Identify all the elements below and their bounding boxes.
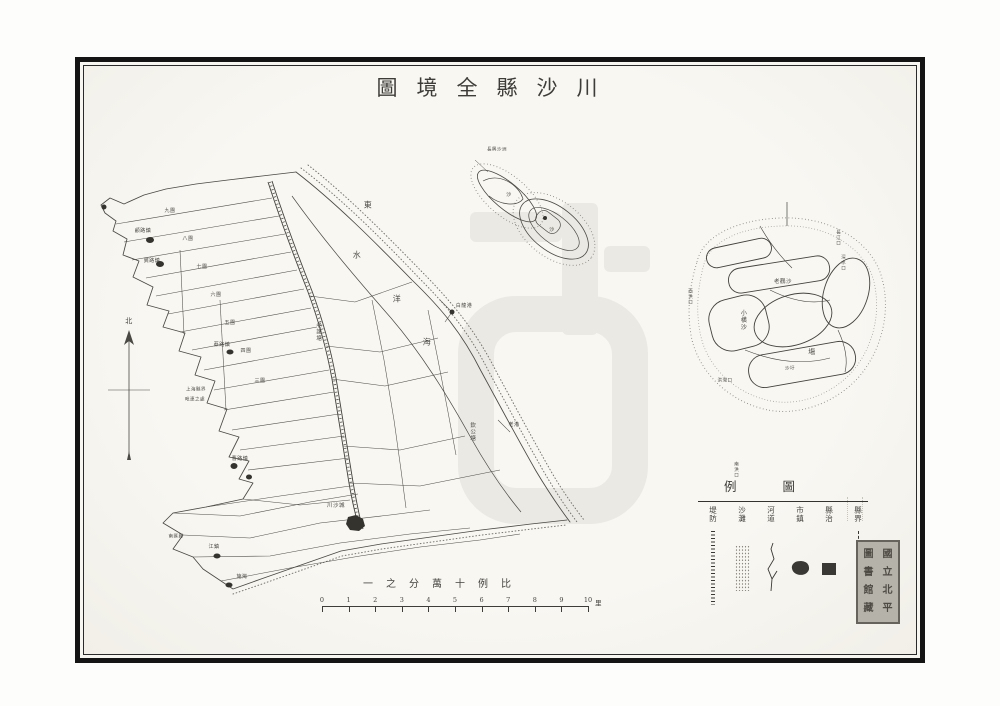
title-char: 川	[577, 72, 598, 102]
scale-tick-number: 5	[453, 596, 457, 604]
scale-char: 一	[363, 575, 373, 590]
county-outline	[101, 172, 570, 589]
seal-character: 國	[883, 546, 893, 564]
legend-item-label: 河道	[766, 506, 777, 523]
town-blob-icon	[791, 560, 810, 576]
title-char: 境	[417, 72, 438, 102]
scale-char: 十	[455, 575, 465, 590]
seal-character: 藏	[864, 600, 874, 618]
seal-character: 圖	[864, 546, 874, 564]
scale-tick-number: 3	[400, 596, 404, 604]
map-title: 圖境全縣沙川	[0, 72, 987, 102]
scale-tick	[588, 606, 589, 612]
seal-character: 平	[883, 600, 893, 618]
title-char: 縣	[497, 72, 518, 102]
scale-caption: 一之分萬十例比	[363, 575, 511, 590]
scale-tick	[482, 606, 483, 612]
scale-tick	[561, 606, 562, 612]
scale-tick	[535, 606, 536, 612]
dike-hatched-line-icon	[711, 531, 715, 605]
scale-char: 萬	[432, 575, 442, 590]
scale-ruler: 里 012345678910	[322, 598, 622, 614]
faint-marks	[847, 497, 863, 521]
scale-unit: 里	[595, 597, 602, 607]
scale-tick-number: 0	[320, 596, 324, 604]
scale-char: 比	[501, 575, 511, 590]
legend-item-town-blob: 市鎮	[788, 506, 812, 575]
scale-char: 例	[478, 575, 488, 590]
scale-tick-number: 9	[559, 596, 563, 604]
scale-tick-number: 1	[347, 596, 351, 604]
scale-tick	[322, 606, 323, 612]
scale-tick-number: 10	[584, 596, 592, 604]
scale-char: 之	[386, 575, 396, 590]
seal-character: 立	[883, 564, 893, 582]
legend-item-label: 市鎮	[795, 506, 806, 523]
north-island	[460, 152, 608, 280]
legend-title: 例圖	[724, 476, 795, 495]
legend-item-label: 堤防	[708, 506, 719, 523]
legend: 例圖 縣界縣治市鎮河道沙灘堤防	[696, 476, 872, 632]
scale-tick-number: 7	[506, 596, 510, 604]
north-arrow	[108, 330, 150, 460]
town-marks	[102, 205, 455, 588]
scale-tick-number: 4	[426, 596, 430, 604]
legend-rule	[698, 501, 868, 502]
title-char: 沙	[537, 72, 558, 102]
legend-item-label: 縣治	[824, 506, 835, 523]
scale-tick	[349, 606, 350, 612]
legend-title-char: 例	[724, 476, 737, 495]
title-char: 圖	[377, 72, 398, 102]
scale-tick	[375, 606, 376, 612]
scale-tick-number: 2	[373, 596, 377, 604]
scale-tick-number: 8	[533, 596, 537, 604]
county-seat-mark	[346, 515, 365, 531]
filled-square-icon	[822, 563, 836, 575]
legend-item-filled-square: 縣治	[817, 506, 841, 575]
seal-character: 書	[864, 564, 874, 582]
legend-item-label: 沙灘	[737, 506, 748, 523]
legend-title-char: 圖	[783, 476, 796, 495]
scale-tick-number: 6	[480, 596, 484, 604]
scale-tick	[455, 606, 456, 612]
legend-item-dike-hatched-line: 堤防	[701, 506, 725, 605]
seal-column: 國立北平	[883, 546, 893, 619]
title-char: 全	[457, 72, 478, 102]
east-island	[689, 202, 885, 411]
scale-tick	[402, 606, 403, 612]
legend-item-river-line: 河道	[759, 506, 783, 597]
seal-character: 館	[864, 582, 874, 600]
south-creeks	[173, 486, 520, 581]
library-seal: 國立北平圖書館藏	[856, 540, 900, 624]
legend-items: 縣界縣治市鎮河道沙灘堤防	[696, 506, 872, 630]
scale-tick	[428, 606, 429, 612]
river-line-icon	[763, 541, 779, 597]
scanned-map-page: 北東水洋海老護塘欽公塘九團八團七團六團五團四團三團顧路鎮龔路鎮蔡路鎮曹路鎮白龍港…	[0, 0, 1000, 706]
east-creeks	[310, 282, 510, 508]
scale-char: 分	[409, 575, 419, 590]
scale-tick	[508, 606, 509, 612]
legend-item-sand-stipple: 沙灘	[730, 506, 754, 591]
sand-stipple-icon	[735, 545, 750, 591]
seal-character: 北	[883, 582, 893, 600]
seal-column: 圖書館藏	[864, 546, 874, 619]
